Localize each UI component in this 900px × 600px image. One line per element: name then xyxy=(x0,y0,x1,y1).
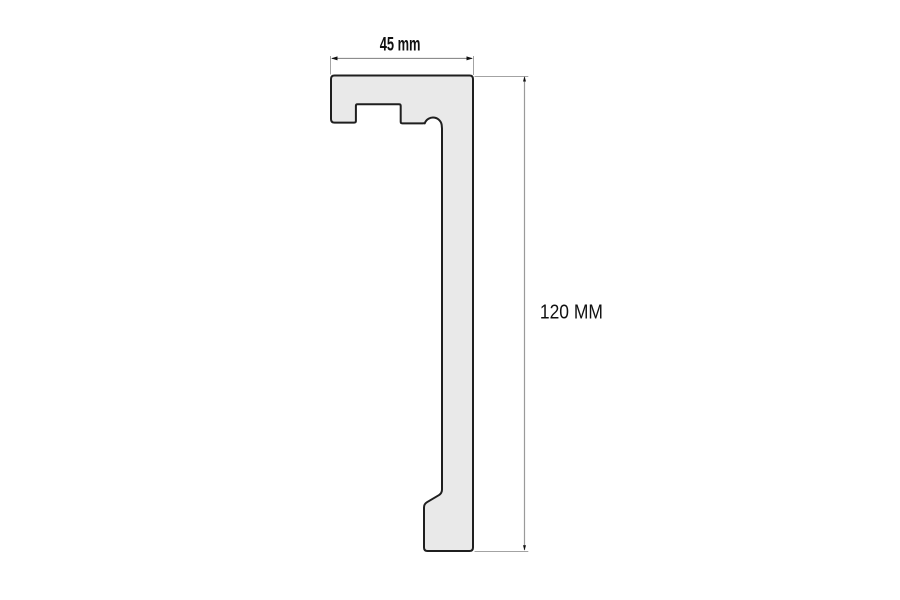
svg-text:45 mm: 45 mm xyxy=(380,35,421,56)
svg-text:120 MM: 120 MM xyxy=(540,302,603,324)
